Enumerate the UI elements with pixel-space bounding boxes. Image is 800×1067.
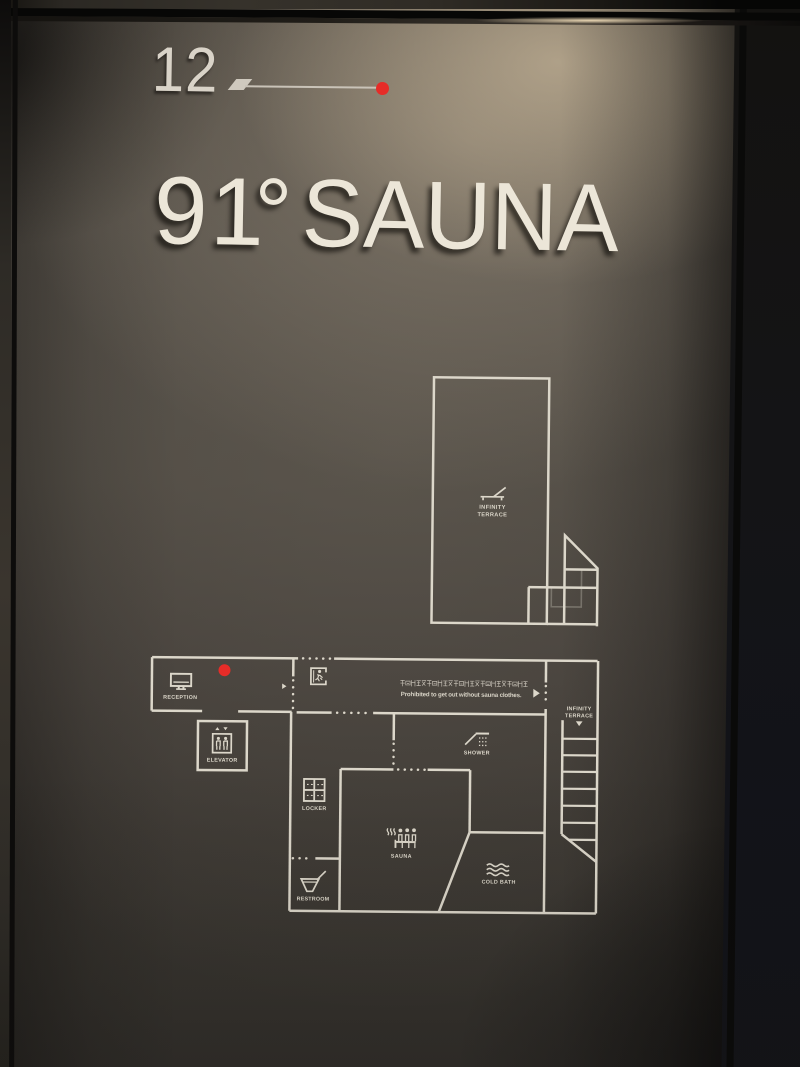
svg-text:TERRACE: TERRACE [565,713,593,719]
svg-text:SHOWER: SHOWER [464,750,490,756]
svg-text:INFINITY: INFINITY [567,706,592,712]
svg-text:TERRACE: TERRACE [477,512,507,518]
svg-text:Prohibited to get out without: Prohibited to get out without sauna clot… [401,691,522,699]
svg-text:INFINITY: INFINITY [479,505,506,511]
svg-text:RECEPTION: RECEPTION [163,695,197,701]
